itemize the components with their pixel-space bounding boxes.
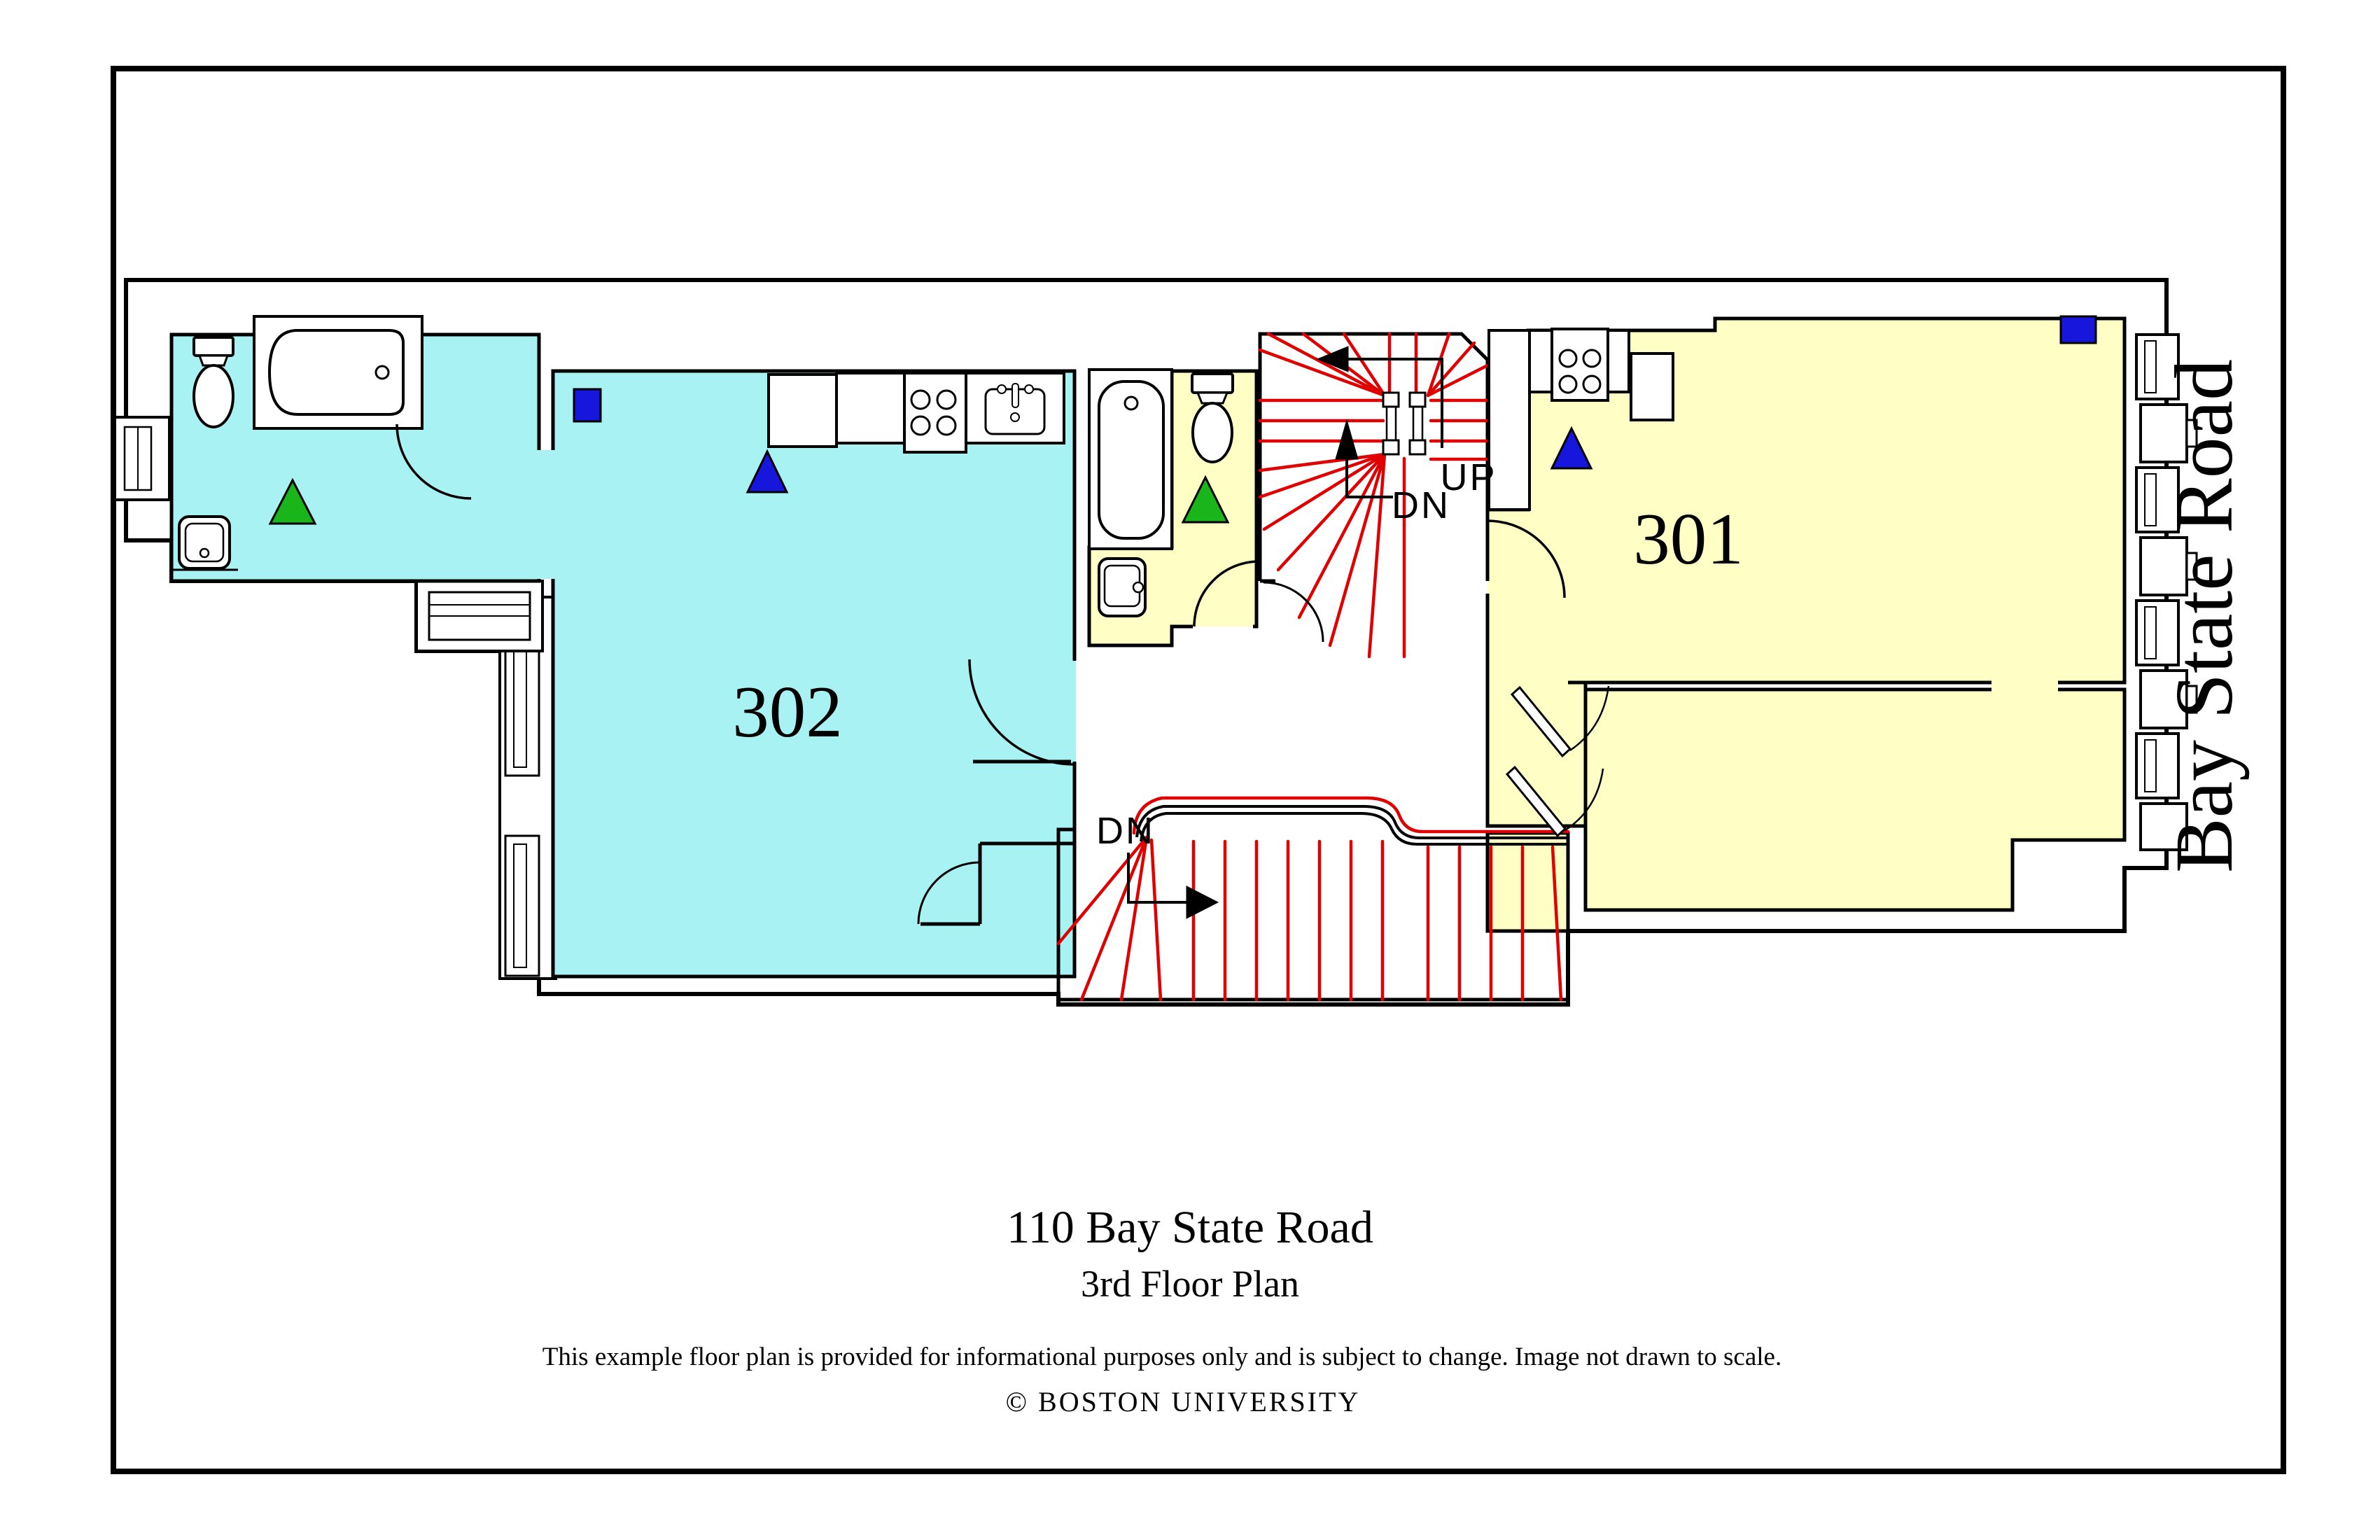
sink-drain: [1011, 413, 1019, 421]
burner: [1583, 376, 1600, 393]
toilet-bowl: [194, 365, 233, 427]
door-opening: [1193, 626, 1253, 633]
sink-faucet: [1133, 582, 1143, 592]
stairs-down-label-lower: DN: [1096, 810, 1155, 852]
toilet-neck: [1198, 393, 1227, 403]
room302-bay-windows: [500, 597, 556, 979]
burner: [1560, 376, 1576, 393]
apartment-302-passage: [536, 450, 559, 579]
stove: [904, 373, 966, 452]
burner: [1560, 350, 1576, 367]
window-glazing: [2145, 474, 2156, 526]
left-facade-windows: [115, 417, 169, 500]
footer-copyright: © BOSTON UNIVERSITY: [1006, 1386, 1361, 1417]
bathtub-drain: [1125, 397, 1137, 409]
blue-square-icon: [2061, 316, 2096, 343]
burner: [937, 416, 955, 435]
door-opening: [1076, 661, 1081, 762]
door-opening: [1069, 661, 1076, 762]
window-glazing: [514, 634, 526, 767]
refrigerator: [769, 374, 836, 447]
burner: [1583, 350, 1600, 367]
burner: [911, 391, 930, 409]
room-302-label: 302: [732, 671, 843, 752]
bathtub-drain: [376, 366, 388, 379]
blue-square-icon: [574, 389, 601, 421]
floor-plan-page: 302 301 UP DN DN Bay State Road 110 Bay …: [0, 0, 2380, 1540]
faucet-handle: [1025, 385, 1033, 393]
window-glazing: [2145, 607, 2156, 659]
toilet-tank: [194, 337, 233, 356]
kitchen-302: [769, 373, 1064, 452]
faucet: [1012, 384, 1018, 407]
chimney: [416, 581, 542, 651]
toilet-bowl: [1193, 403, 1232, 462]
street-label: Bay State Road: [2158, 359, 2250, 873]
toilet-tank: [1192, 374, 1233, 393]
burner: [911, 416, 930, 435]
window-glazing: [2145, 740, 2156, 792]
window-glazing: [514, 844, 526, 967]
room-301-label: 301: [1633, 498, 1744, 580]
toilet-neck: [199, 356, 227, 365]
stairs-down-label-upper: DN: [1392, 484, 1450, 526]
footer-plan-title: 3rd Floor Plan: [1081, 1263, 1299, 1305]
sink-faucet: [200, 549, 209, 557]
counter: [836, 373, 904, 443]
footer-disclaimer: This example floor plan is provided for …: [542, 1343, 1781, 1371]
door-opening: [1193, 620, 1253, 626]
footer-address: 110 Bay State Road: [1007, 1202, 1373, 1253]
burner: [937, 391, 955, 409]
refrigerator: [1631, 353, 1673, 420]
window-glazing: [2145, 341, 2156, 393]
faucet-handle: [997, 385, 1006, 393]
door-opening: [1991, 677, 2058, 695]
